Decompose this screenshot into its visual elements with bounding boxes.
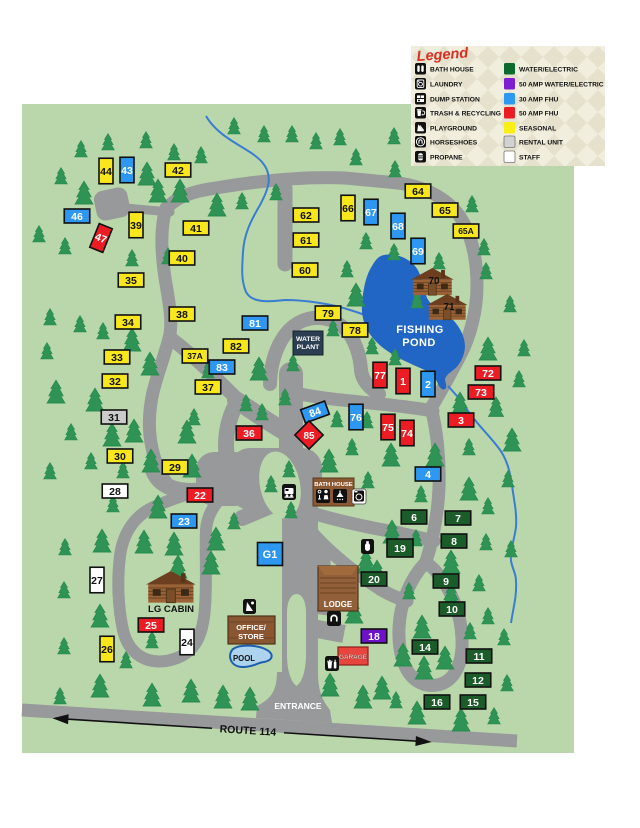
- svg-text:37: 37: [202, 382, 214, 394]
- svg-text:46: 46: [71, 211, 83, 223]
- svg-text:6: 6: [411, 512, 417, 524]
- svg-text:66: 66: [342, 203, 354, 215]
- svg-text:61: 61: [300, 235, 312, 247]
- svg-text:PLANT: PLANT: [297, 344, 321, 351]
- svg-text:72: 72: [482, 368, 494, 380]
- svg-text:SEASONAL: SEASONAL: [519, 126, 556, 133]
- svg-text:LG CABIN: LG CABIN: [148, 604, 194, 615]
- svg-text:62: 62: [300, 210, 312, 222]
- svg-text:73: 73: [475, 387, 487, 399]
- svg-text:81: 81: [249, 318, 261, 330]
- svg-text:LAUNDRY: LAUNDRY: [430, 82, 463, 89]
- svg-text:60: 60: [299, 265, 311, 277]
- svg-text:41: 41: [190, 223, 202, 235]
- svg-text:29: 29: [169, 462, 181, 474]
- svg-text:33: 33: [111, 352, 123, 364]
- svg-text:43: 43: [121, 165, 133, 177]
- svg-text:19: 19: [394, 543, 406, 555]
- svg-text:11: 11: [473, 651, 484, 663]
- svg-text:WATER: WATER: [296, 336, 320, 343]
- svg-text:70: 70: [428, 276, 440, 287]
- svg-text:71: 71: [443, 302, 455, 313]
- svg-text:27: 27: [91, 575, 103, 587]
- svg-text:38: 38: [176, 309, 188, 321]
- svg-text:10: 10: [446, 604, 458, 616]
- svg-text:LODGE: LODGE: [324, 600, 353, 609]
- svg-text:35: 35: [125, 275, 137, 287]
- svg-text:74: 74: [401, 428, 413, 440]
- svg-text:78: 78: [349, 325, 361, 337]
- svg-text:32: 32: [109, 376, 121, 388]
- svg-text:75: 75: [382, 422, 394, 434]
- svg-text:HORSESHOES: HORSESHOES: [430, 140, 478, 147]
- svg-text:83: 83: [216, 362, 228, 374]
- svg-text:77: 77: [374, 370, 386, 382]
- svg-text:31: 31: [108, 412, 120, 424]
- svg-text:14: 14: [419, 642, 431, 654]
- svg-text:65: 65: [439, 205, 451, 217]
- svg-text:30 AMP FHU: 30 AMP FHU: [519, 97, 559, 104]
- svg-text:GARAGE: GARAGE: [339, 654, 368, 661]
- svg-text:16: 16: [431, 697, 443, 709]
- svg-text:POND: POND: [402, 337, 435, 349]
- svg-text:TRASH & RECYCLING: TRASH & RECYCLING: [430, 111, 501, 118]
- svg-text:7: 7: [455, 513, 461, 525]
- svg-text:82: 82: [230, 341, 242, 353]
- svg-text:44: 44: [100, 166, 112, 178]
- svg-text:85: 85: [303, 431, 315, 442]
- svg-text:69: 69: [412, 246, 424, 258]
- svg-text:BATH HOUSE: BATH HOUSE: [430, 67, 474, 74]
- svg-text:34: 34: [122, 317, 134, 329]
- svg-text:28: 28: [109, 486, 121, 498]
- svg-text:30: 30: [114, 451, 126, 463]
- svg-text:36: 36: [243, 428, 255, 440]
- svg-text:2: 2: [425, 379, 431, 391]
- svg-text:15: 15: [467, 697, 479, 709]
- svg-text:50 AMP WATER/ELECTRIC: 50 AMP WATER/ELECTRIC: [519, 82, 604, 89]
- svg-text:24: 24: [181, 637, 193, 649]
- svg-text:64: 64: [412, 186, 424, 198]
- svg-text:67: 67: [365, 207, 377, 219]
- svg-text:PLAYGROUND: PLAYGROUND: [430, 126, 477, 133]
- svg-text:PROPANE: PROPANE: [430, 155, 463, 162]
- svg-text:1: 1: [400, 376, 406, 388]
- svg-text:3: 3: [458, 415, 464, 427]
- svg-text:18: 18: [368, 631, 380, 643]
- svg-text:50 AMP FHU: 50 AMP FHU: [519, 111, 559, 118]
- svg-text:WATER/ELECTRIC: WATER/ELECTRIC: [519, 67, 578, 74]
- svg-text:RENTAL UNIT: RENTAL UNIT: [519, 140, 564, 147]
- svg-text:12: 12: [472, 675, 484, 687]
- svg-text:STAFF: STAFF: [519, 155, 540, 162]
- svg-text:23: 23: [178, 516, 190, 528]
- svg-text:20: 20: [368, 574, 380, 586]
- svg-text:OFFICE/: OFFICE/: [236, 623, 266, 632]
- svg-text:STORE: STORE: [238, 632, 264, 641]
- svg-text:42: 42: [172, 165, 184, 177]
- svg-text:39: 39: [130, 220, 142, 232]
- svg-text:ENTRANCE: ENTRANCE: [274, 701, 322, 711]
- svg-text:FISHING: FISHING: [396, 324, 443, 336]
- svg-text:POOL: POOL: [233, 654, 255, 663]
- svg-text:40: 40: [176, 253, 188, 265]
- svg-text:9: 9: [443, 576, 449, 588]
- svg-text:DUMP STATION: DUMP STATION: [430, 97, 480, 104]
- svg-text:22: 22: [194, 490, 206, 502]
- svg-text:68: 68: [392, 221, 404, 233]
- svg-text:37A: 37A: [187, 351, 203, 361]
- svg-text:76: 76: [350, 412, 362, 424]
- svg-text:8: 8: [451, 536, 457, 548]
- svg-text:G1: G1: [263, 549, 278, 561]
- svg-text:4: 4: [425, 469, 431, 481]
- svg-text:BATH HOUSE: BATH HOUSE: [314, 482, 353, 488]
- svg-text:26: 26: [101, 644, 113, 656]
- svg-text:25: 25: [145, 620, 157, 632]
- svg-text:79: 79: [322, 308, 334, 320]
- svg-text:65A: 65A: [458, 226, 474, 236]
